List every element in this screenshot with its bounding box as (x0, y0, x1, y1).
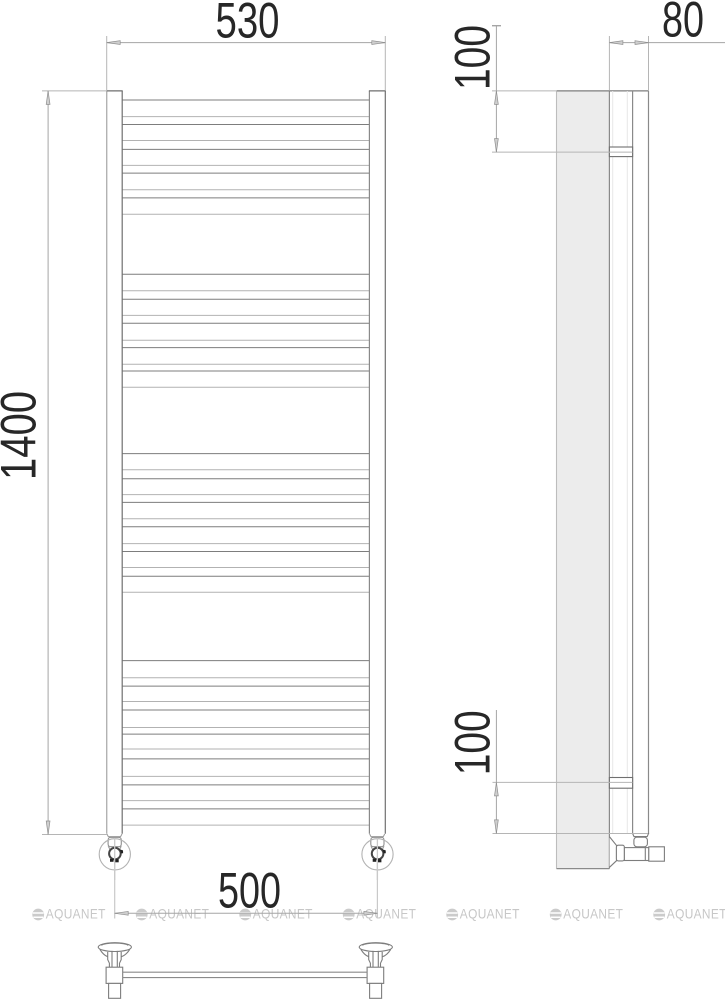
svg-text:530: 530 (216, 0, 280, 48)
svg-text:1400: 1400 (0, 391, 47, 480)
svg-text:500: 500 (218, 863, 281, 919)
svg-text:100: 100 (445, 25, 501, 90)
svg-text:100: 100 (445, 710, 501, 775)
svg-text:AQUANET: AQUANET (46, 906, 106, 921)
svg-text:80: 80 (662, 0, 704, 47)
